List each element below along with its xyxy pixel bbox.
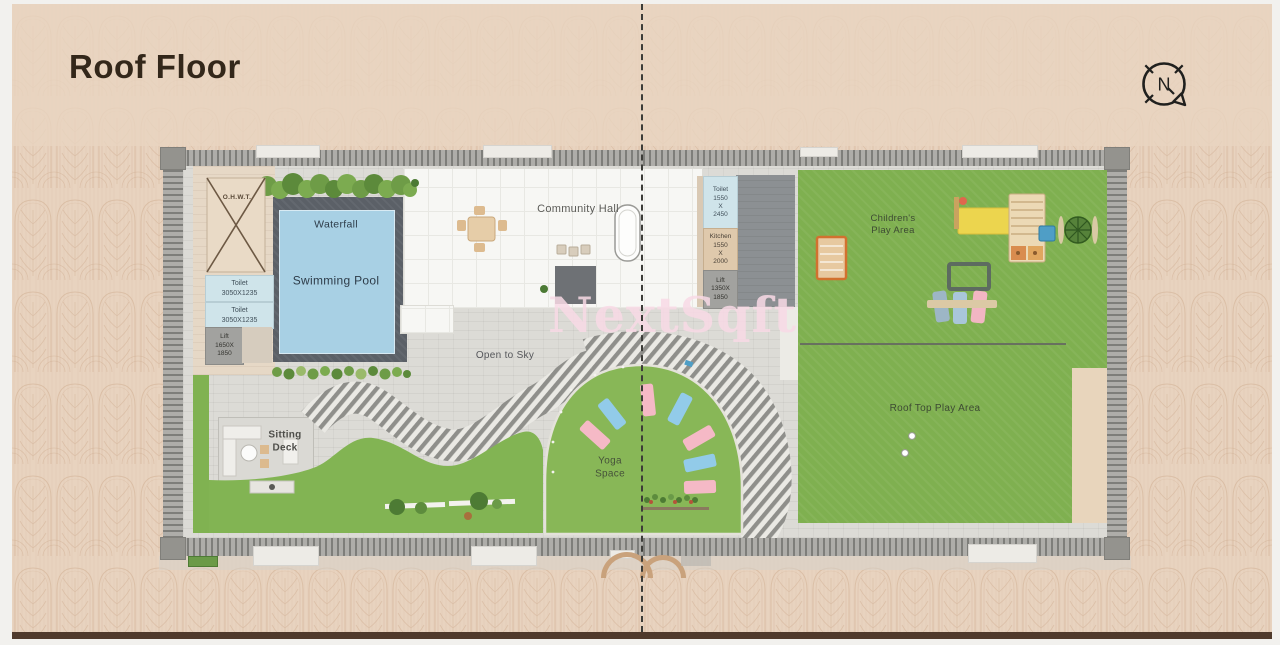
balcony-slab (471, 546, 537, 566)
wall-right (1107, 150, 1127, 556)
wall-left (163, 150, 183, 556)
center-dashed-line (641, 4, 643, 632)
bottom-accent-bar (12, 632, 1272, 639)
balcony-slab (483, 145, 552, 158)
tree (415, 502, 427, 514)
swimming-pool-label: Swimming Pool (293, 274, 380, 289)
tree (470, 492, 488, 510)
label-line: Yoga (595, 456, 625, 469)
community-hall-label: Community Hall (537, 203, 619, 217)
childrens-play-area-label: Children's Play Area (871, 213, 916, 237)
open-to-sky-label: Open to Sky (476, 350, 534, 363)
corner-pillar (1104, 147, 1130, 170)
label-line: Children's (871, 213, 916, 225)
shrub (464, 512, 472, 520)
play-ball (909, 433, 916, 440)
corner-pillar (1104, 537, 1130, 560)
lawn-strip (193, 375, 209, 533)
tree (389, 499, 405, 515)
stone-blocks (681, 556, 711, 566)
label-line: Sitting (268, 430, 301, 443)
sitting-deck-label: Sitting Deck (268, 430, 301, 455)
ohwt-label: O.H.W.T. (223, 194, 251, 202)
yoga-space-label: Yoga Space (595, 456, 625, 481)
roof-top-play-area-label: Roof Top Play Area (890, 403, 981, 416)
balcony-slab (256, 145, 320, 158)
label-line: Space (595, 468, 625, 481)
planter (643, 507, 709, 510)
page-background: Roof Floor N (12, 4, 1272, 639)
label-line: Deck (268, 442, 301, 455)
hedge (188, 556, 218, 567)
watermark: NextSqft (548, 286, 797, 344)
play-ball (902, 450, 909, 457)
compass-n-text: N (1158, 75, 1171, 95)
waterfall-label: Waterfall (314, 218, 358, 231)
label-line: Play Area (871, 225, 916, 237)
pool-foliage (257, 173, 417, 199)
balcony-slab (962, 145, 1038, 158)
floor-plan: Toilet 3050X1235 Toilet 3050X1235 Lift 1… (163, 150, 1127, 560)
balcony-slab (253, 546, 319, 566)
balcony-slab (800, 147, 838, 157)
balcony-slab (968, 544, 1037, 563)
deck-shrubs (272, 366, 411, 380)
page-title: Roof Floor (69, 48, 241, 86)
play-equipment (817, 194, 1098, 324)
north-compass-icon: N (1140, 60, 1188, 108)
corner-pillar (160, 537, 186, 560)
tree (492, 499, 502, 509)
striped-walkway (313, 366, 591, 445)
